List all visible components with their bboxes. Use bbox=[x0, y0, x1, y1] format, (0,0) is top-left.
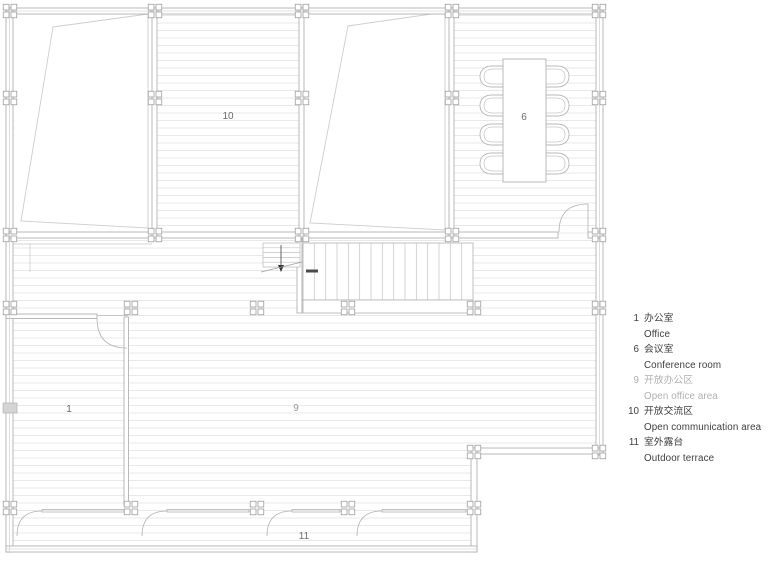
floorplan-page: 1 6 9 10 11 1 办公室 Office 6 会议室 Conferenc… bbox=[0, 0, 780, 565]
legend-label-zh: 室外露台 bbox=[644, 435, 714, 451]
stair-main-run bbox=[303, 243, 473, 300]
right-void-area bbox=[304, 14, 450, 233]
stair-upper-flight bbox=[263, 243, 300, 267]
legend-row-terrace: 11 室外露台 Outdoor terrace bbox=[627, 435, 777, 466]
room10-left-wall bbox=[152, 8, 157, 238]
room-label-open-office: 9 bbox=[293, 403, 299, 414]
room-label-office: 1 bbox=[66, 404, 72, 415]
legend: 1 办公室 Office 6 会议室 Conference room 9 开放办… bbox=[627, 311, 777, 466]
wall-mullion-mark bbox=[3, 403, 17, 413]
legend-number: 11 bbox=[627, 435, 639, 451]
legend-number: 1 bbox=[627, 311, 639, 327]
legend-number: 6 bbox=[627, 342, 639, 358]
notch-wall-horizontal bbox=[474, 448, 603, 454]
legend-number: 9 bbox=[627, 373, 639, 389]
terrace-right-wall bbox=[471, 448, 477, 552]
legend-label-en: Open communication area bbox=[644, 420, 761, 436]
legend-label-en: Outdoor terrace bbox=[644, 451, 714, 467]
room-label-conference: 6 bbox=[521, 112, 527, 123]
legend-row-conference: 6 会议室 Conference room bbox=[627, 342, 777, 373]
floor-plan-drawing: 1 6 9 10 11 bbox=[0, 0, 780, 565]
legend-number: 10 bbox=[627, 404, 639, 420]
room-label-communication: 10 bbox=[222, 111, 234, 122]
legend-label-en: Open office area bbox=[644, 389, 718, 405]
room1-right-wall bbox=[124, 317, 129, 505]
legend-label-zh: 开放交流区 bbox=[644, 404, 761, 420]
legend-label-en: Conference room bbox=[644, 358, 721, 374]
conference-left-wall bbox=[449, 8, 454, 238]
legend-label-zh: 办公室 bbox=[644, 311, 673, 327]
legend-label-zh: 会议室 bbox=[644, 342, 721, 358]
room10-right-wall bbox=[299, 8, 304, 238]
stair-entry-arrow-icon bbox=[306, 270, 318, 273]
room-label-terrace: 11 bbox=[299, 531, 310, 542]
legend-label-zh: 开放办公区 bbox=[644, 373, 718, 389]
stair-landing bbox=[303, 300, 473, 313]
mid-wall-left-segment bbox=[6, 232, 558, 238]
legend-label-en: Office bbox=[644, 327, 673, 343]
legend-row-open-office: 9 开放办公区 Open office area bbox=[627, 373, 777, 404]
legend-row-office: 1 办公室 Office bbox=[627, 311, 777, 342]
room1-top-wall bbox=[6, 314, 97, 319]
left-void-area bbox=[14, 14, 153, 233]
legend-row-communication: 10 开放交流区 Open communication area bbox=[627, 404, 777, 435]
